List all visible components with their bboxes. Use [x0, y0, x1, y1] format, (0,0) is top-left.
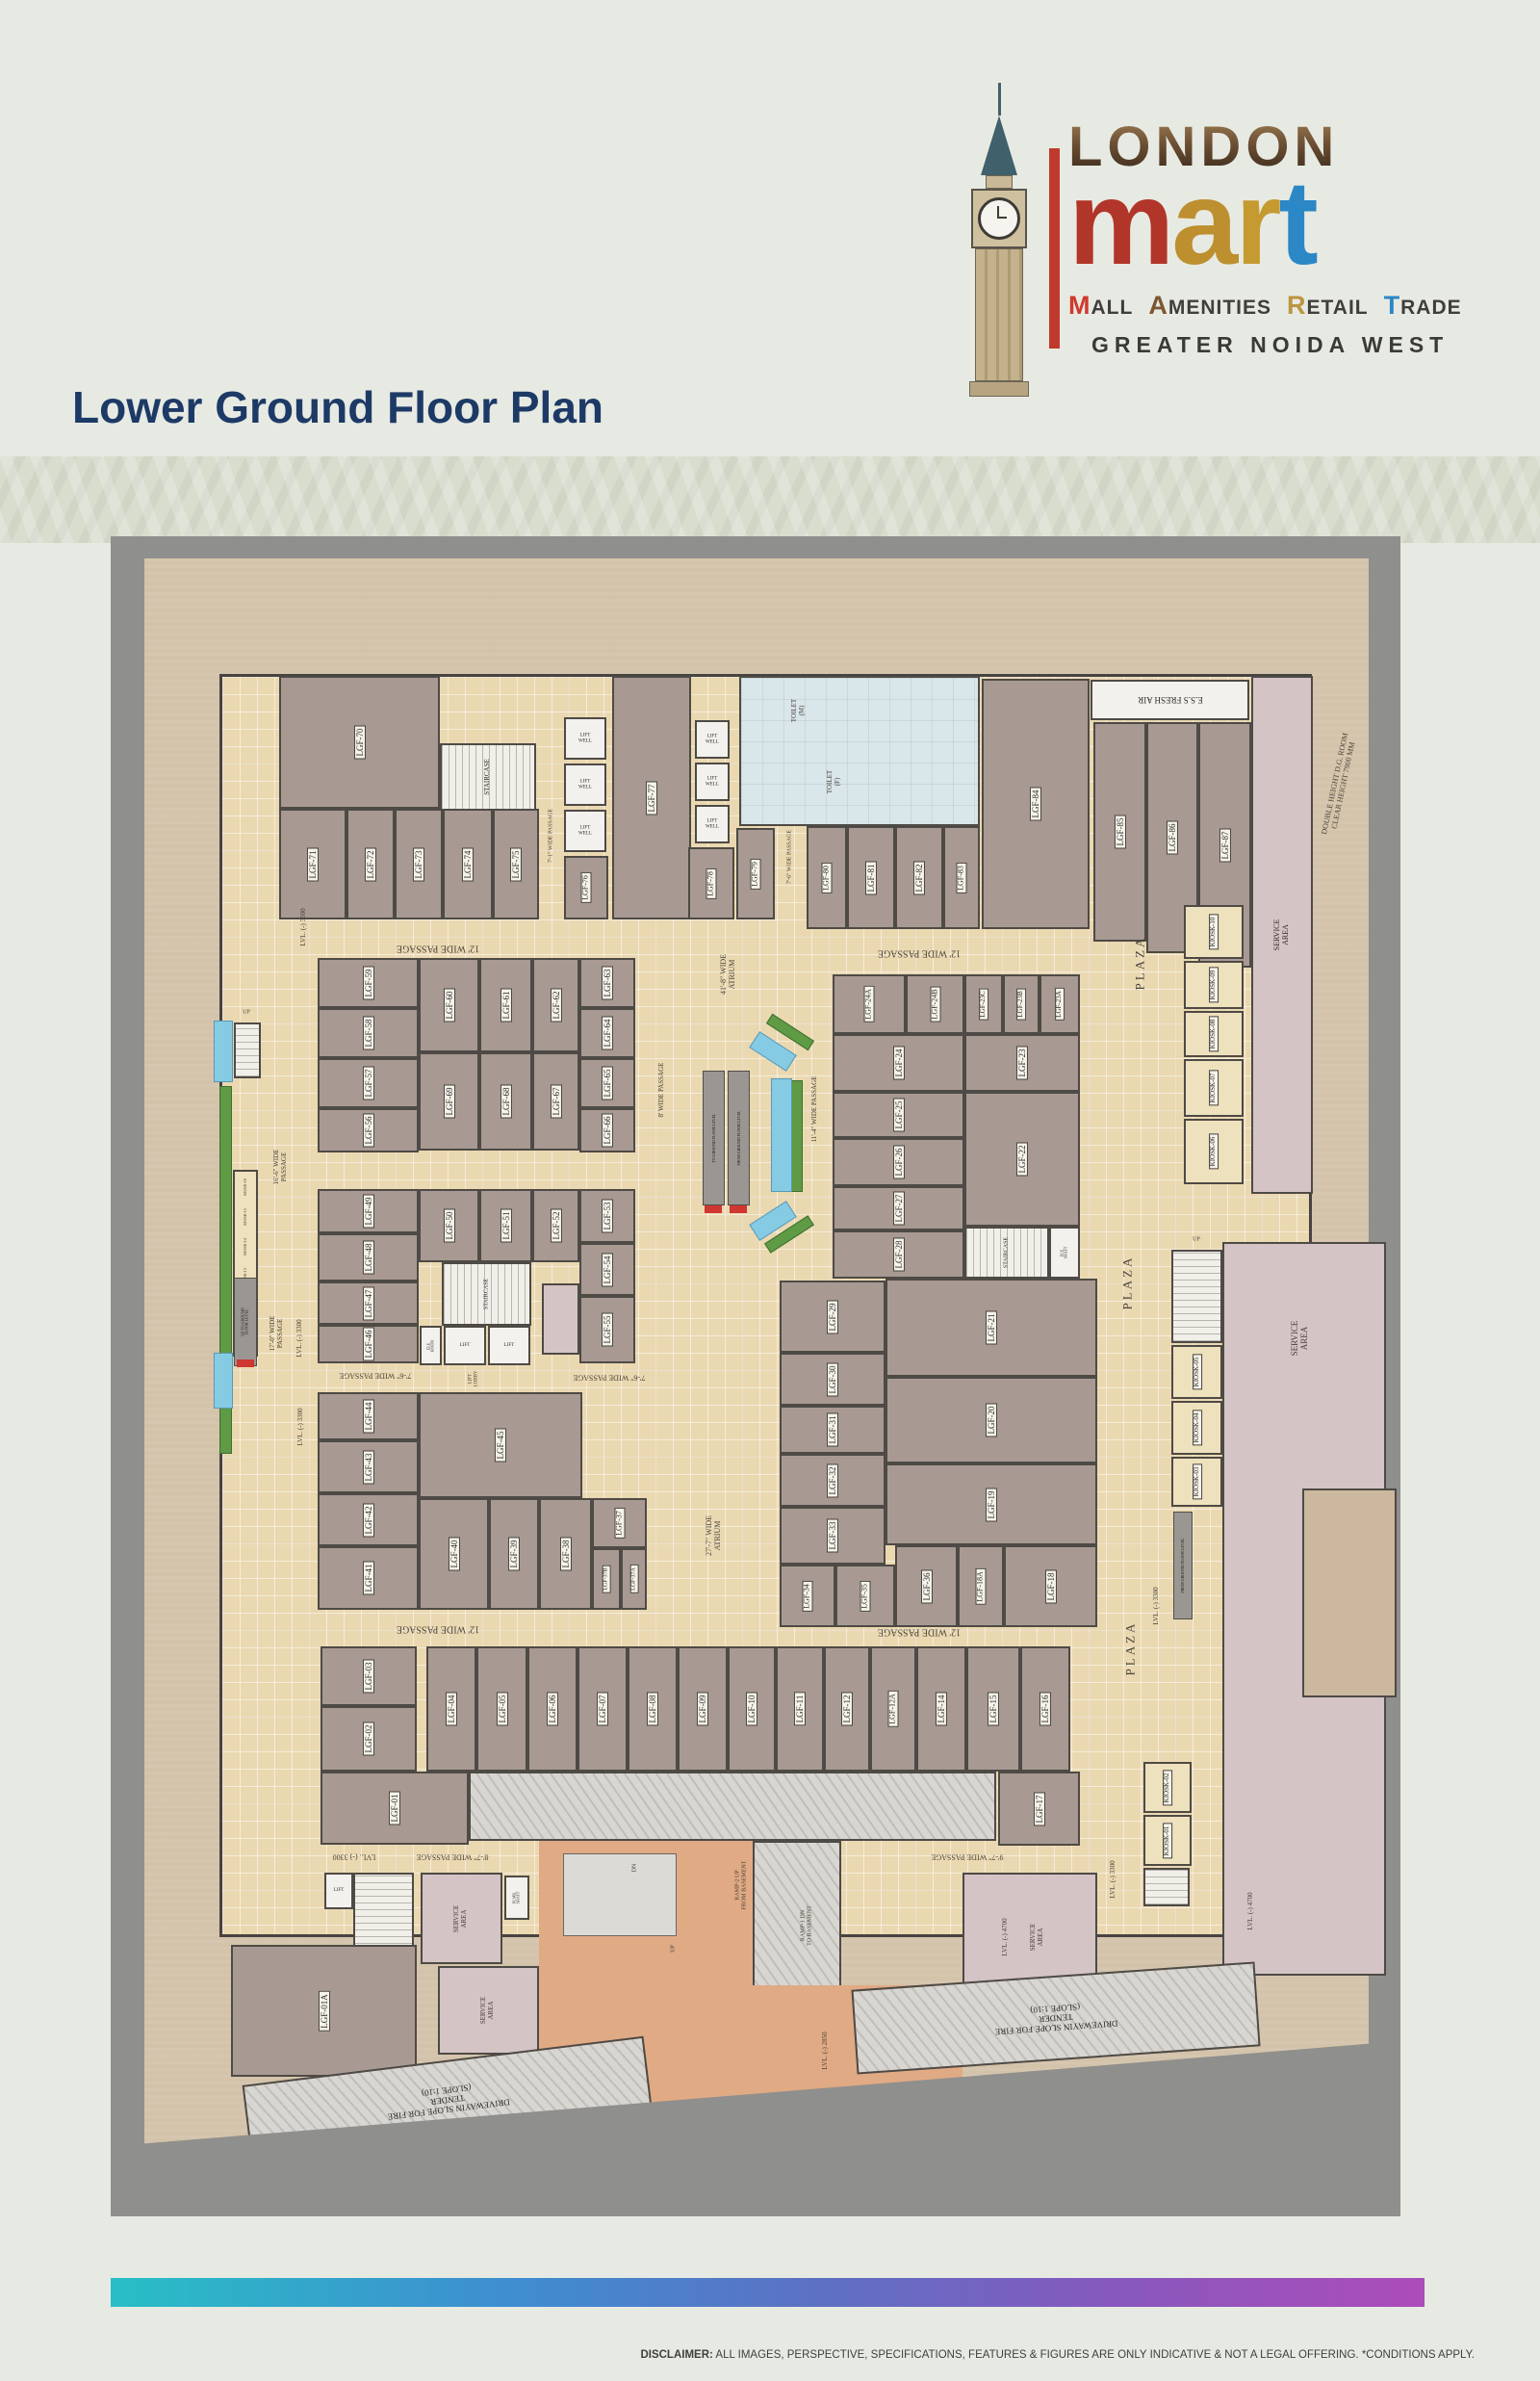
plan-lgf-72: LGF-72 [346, 809, 395, 919]
plan-kiosk-05: KIOSK-05 [1171, 1345, 1222, 1399]
plan-lift-well: LIFTWELL [564, 717, 606, 760]
plan-lgf-09: LGF-09 [678, 1646, 728, 1772]
plan-lgf-45: LGF-45 [419, 1392, 582, 1498]
plan-kiosk-08: KIOSK-08 [1184, 1011, 1244, 1057]
disclaimer: DISCLAIMER: ALL IMAGES, PERSPECTIVE, SPE… [640, 2349, 1475, 2361]
plan-lgf-81: LGF-81 [847, 826, 895, 929]
plan-lgf-20: LGF-20 [885, 1377, 1097, 1463]
plan-lgf-30: LGF-30 [780, 1353, 885, 1406]
plan-lgf-18: LGF-18 [1004, 1545, 1097, 1627]
plan-lgf-31: LGF-31 [780, 1406, 885, 1454]
plan-lgf-80: LGF-80 [807, 826, 847, 929]
plan-lgf-63: LGF-63 [579, 958, 635, 1008]
escalator-arrow-2 [730, 1205, 747, 1213]
plan-lgf-41: LGF-41 [318, 1546, 419, 1610]
plan-kiosk-04: KIOSK-04 [1171, 1401, 1222, 1455]
plan-kiosk-03: KIOSK-03 [1171, 1457, 1222, 1507]
plan-lgf-82: LGF-82 [895, 826, 943, 929]
plan-lgf-54: LGF-54 [579, 1243, 635, 1296]
internal-ramp [563, 1853, 677, 1936]
plan-lgf-01a: LGF-01A [231, 1945, 417, 2077]
plan-lgf-49: LGF-49 [318, 1189, 419, 1233]
staircase-top: STAIRCASE [440, 743, 536, 811]
floor-plan: LGF-70STAIRCASELGF-71LGF-72LGF-73LGF-74L… [0, 0, 1540, 2381]
plan-kiosk-10: KIOSK-10 [1184, 905, 1244, 959]
plan-lgf-84: LGF-84 [982, 679, 1090, 929]
plan-lgf-73: LGF-73 [395, 809, 443, 919]
plan-lgf-69: LGF-69 [419, 1052, 479, 1151]
plan-kiosk-07: KIOSK-07 [1184, 1059, 1244, 1117]
plan-lgf-12: LGF-12 [824, 1646, 870, 1772]
escalator-arrow [705, 1205, 722, 1213]
plan-lgf-17: LGF-17 [998, 1772, 1080, 1846]
water-feature-left [214, 1021, 233, 1082]
plan-lgf-14: LGF-14 [916, 1646, 966, 1772]
plan-lgf-32: LGF-32 [780, 1454, 885, 1507]
plan-lgf-59: LGF-59 [318, 958, 419, 1008]
plan-lgf-28: LGF-28 [833, 1230, 964, 1279]
escalator-down: FROM GROUND FLOOR LEVEL [728, 1071, 750, 1205]
plan-lgf-60: LGF-60 [419, 958, 479, 1052]
plan-kiosk-06: KIOSK-06 [1184, 1119, 1244, 1184]
staircase-east: STAIRCASE [964, 1227, 1049, 1279]
plan-lift-well-3: LIFTWELL [564, 810, 606, 852]
plan-lift-well-2: LIFTWELL [564, 763, 606, 806]
plan-lgf-37: LGF-37 [592, 1498, 647, 1548]
plan-lgf-78: LGF-78 [688, 847, 734, 919]
plan-kiosk-01: KIOSK-01 [1143, 1815, 1192, 1866]
escalator-plaza: FROM GROUND FLOOR LEVEL [1173, 1512, 1193, 1619]
plan-lgf-85: LGF-85 [1093, 722, 1146, 942]
stair-left [234, 1022, 261, 1078]
plan-lgf-19: LGF-19 [885, 1463, 1097, 1545]
plan-lgf-12a: LGF-12A [870, 1646, 916, 1772]
plan-lgf-04: LGF-04 [426, 1646, 476, 1772]
plan-lgf-24a: LGF-24A [833, 974, 906, 1034]
plan-lift-well-5: LIFTWELL [695, 763, 730, 801]
plan-lgf-83: LGF-83 [943, 826, 980, 929]
plan-lgf-50: LGF-50 [419, 1189, 479, 1262]
plan-lgf-21: LGF-21 [885, 1279, 1097, 1377]
plan-lgf-38: LGF-38 [539, 1498, 592, 1610]
plan-lgf-77: LGF-77 [612, 676, 691, 919]
plan-lgf-55: LGF-55 [579, 1296, 635, 1363]
plan-lgf-67: LGF-67 [532, 1052, 579, 1151]
plan-lift-3: LIFT [324, 1873, 353, 1909]
plan-lgf-76: LGF-76 [564, 856, 608, 919]
plan-lgf-11: LGF-11 [776, 1646, 824, 1772]
plan-lgf-24: LGF-24 [833, 1034, 964, 1092]
plan-lift-2: LIFT [488, 1326, 530, 1365]
plan-lgf-26: LGF-26 [833, 1138, 964, 1186]
plan-lgf-66: LGF-66 [579, 1108, 635, 1152]
plan-lgf-33: LGF-33 [780, 1507, 885, 1565]
plan-lgf-62: LGF-62 [532, 958, 579, 1052]
water-feature-2 [771, 1078, 792, 1192]
plan-lgf-47: LGF-47 [318, 1281, 419, 1325]
plan-lgf-08: LGF-08 [628, 1646, 678, 1772]
plan-lgf-58: LGF-58 [318, 1008, 419, 1058]
plan-lgf-68: LGF-68 [479, 1052, 532, 1151]
plan-lgf-23c: LGF-23C [964, 974, 1003, 1034]
plan-lgf-10: LGF-10 [728, 1646, 776, 1772]
plan-lift-well-6: LIFTWELL [695, 805, 730, 843]
plan-lgf-65: LGF-65 [579, 1058, 635, 1108]
plan-lgf-75: LGF-75 [493, 809, 539, 919]
plan-lgf-16: LGF-16 [1020, 1646, 1070, 1772]
plan-lgf-44: LGF-44 [318, 1392, 419, 1440]
plan-lgf-52: LGF-52 [532, 1189, 579, 1262]
plan-lift-well-4: LIFTWELL [695, 720, 730, 759]
plan-lgf-15: LGF-15 [966, 1646, 1020, 1772]
plan-lgf-34: LGF-34 [780, 1565, 835, 1627]
plan-lgf-03: LGF-03 [321, 1646, 417, 1706]
plan-lgf-05: LGF-05 [476, 1646, 527, 1772]
plan-lgf-35: LGF-35 [835, 1565, 895, 1627]
disclaimer-label: DISCLAIMER: [640, 2349, 712, 2361]
staircase-plaza [1171, 1250, 1222, 1343]
plan-lgf-46: LGF-46 [318, 1325, 419, 1363]
plan-lgf-64: LGF-64 [579, 1008, 635, 1058]
plan-lgf-37a: LGF-37A [621, 1548, 647, 1610]
plan-lgf-71: LGF-71 [279, 809, 346, 919]
plan-lgf-24b: LGF-24B [906, 974, 964, 1034]
disclaimer-text: ALL IMAGES, PERSPECTIVE, SPECIFICATIONS,… [713, 2349, 1475, 2361]
plan-lgf-61: LGF-61 [479, 958, 532, 1052]
plan-lgf-27: LGF-27 [833, 1186, 964, 1230]
ahu-room [542, 1283, 579, 1355]
plan-lgf-42: LGF-42 [318, 1493, 419, 1546]
driveway [469, 1772, 996, 1841]
escalator-up: TO GROUND FLOOR LEVEL [703, 1071, 725, 1205]
plan-lgf-74: LGF-74 [443, 809, 493, 919]
planter-2 [791, 1080, 803, 1192]
poster-page: Lower Ground Floor Plan LONDON mart MALL… [0, 0, 1540, 2381]
plan-lgf-25: LGF-25 [833, 1092, 964, 1138]
footer-gradient-bar [111, 2278, 1424, 2307]
escalator-arrow-3 [237, 1359, 254, 1367]
plan-lgf-01: LGF-01 [321, 1772, 469, 1845]
plan-lgf-23b: LGF-23B [1003, 974, 1039, 1034]
plan-lgf-56: LGF-56 [318, 1108, 419, 1152]
escalator-left: UP TO GROUNDFLOOR LEVEL [234, 1278, 257, 1366]
plan-kiosk-02: KIOSK-02 [1143, 1762, 1192, 1813]
water-feature-left-2 [214, 1353, 233, 1409]
plan-lgf-53: LGF-53 [579, 1189, 635, 1243]
plan-lift: LIFT [444, 1326, 486, 1365]
plan-plmb-shaft: PLMB.SHAFT [504, 1876, 529, 1920]
plan-ele-room: ELE.ROOM [420, 1326, 442, 1365]
plan-e-s-s-fresh-air: E.S.S FRESH AIR [1091, 680, 1249, 720]
plan-lgf-22: LGF-22 [964, 1092, 1080, 1227]
plan-lgf-48: LGF-48 [318, 1233, 419, 1281]
service-area-top: SERVICEAREA [1251, 676, 1313, 1194]
plan-lgf-51: LGF-51 [479, 1189, 532, 1262]
plan-lgf-29: LGF-29 [780, 1281, 885, 1353]
plan-lgf-23a: LGF-23A [1039, 974, 1080, 1034]
plan-lgf-70: LGF-70 [279, 676, 440, 809]
plan-lgf-07: LGF-07 [577, 1646, 628, 1772]
plan-lgf-40: LGF-40 [419, 1498, 489, 1610]
plan-lgf-43: LGF-43 [318, 1440, 419, 1493]
plan-lgf-18a: LGF-18A [958, 1545, 1004, 1627]
plan-lgf-02: LGF-02 [321, 1706, 417, 1772]
plan-lgf-23: LGF-23 [964, 1034, 1080, 1092]
plan-kiosk-09: KIOSK-09 [1184, 961, 1244, 1009]
toilet-block [739, 676, 980, 826]
plan-lgf-37b: LGF-37B [592, 1548, 621, 1610]
plan-lgf-06: LGF-06 [527, 1646, 577, 1772]
staircase-plaza-south [1143, 1868, 1190, 1906]
plan-ele-shaft: ELE.SHAFT [1049, 1227, 1080, 1279]
plan-lgf-39: LGF-39 [489, 1498, 539, 1610]
staircase-mid: STAIRCASE [442, 1262, 531, 1326]
plan-lgf-79: LGF-79 [736, 828, 775, 919]
service-yard [1302, 1488, 1397, 1697]
plan-lgf-36: LGF-36 [895, 1545, 958, 1627]
plan-lgf-57: LGF-57 [318, 1058, 419, 1108]
